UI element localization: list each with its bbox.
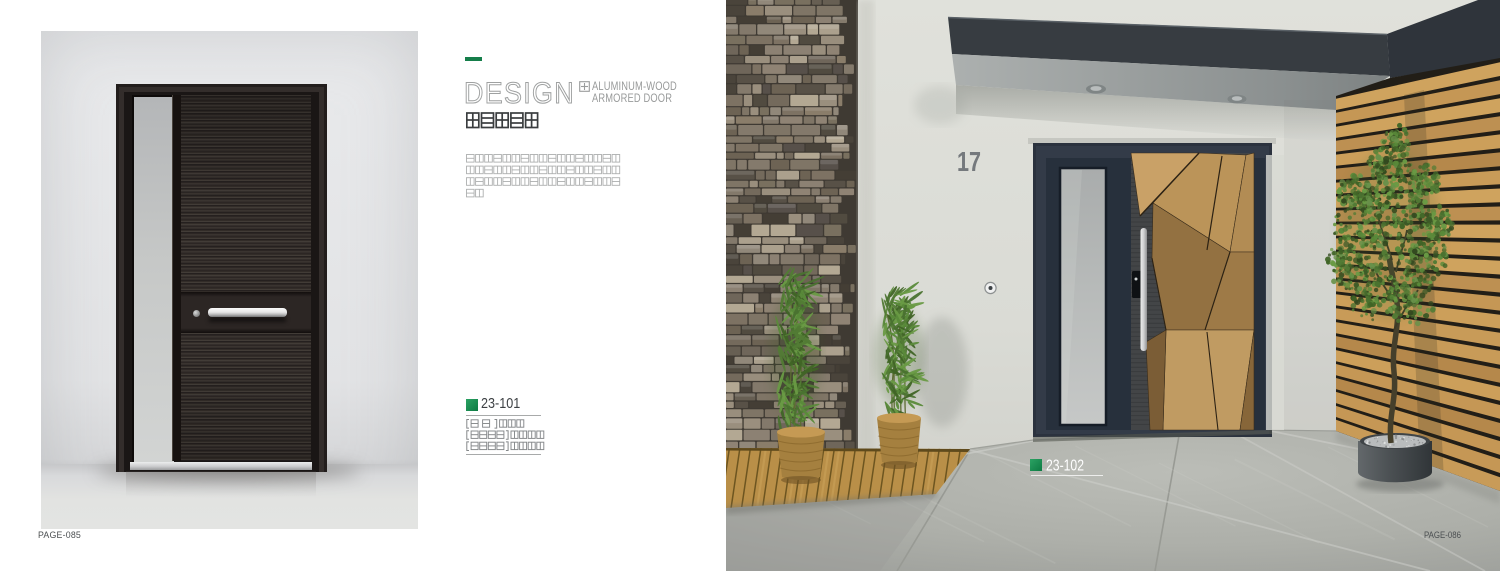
svg-text:PAGE-086: PAGE-086	[1424, 530, 1461, 540]
svg-text:23-102: 23-102	[1046, 458, 1084, 475]
svg-text:DESIGN: DESIGN	[464, 77, 575, 109]
svg-text:17: 17	[957, 146, 981, 177]
